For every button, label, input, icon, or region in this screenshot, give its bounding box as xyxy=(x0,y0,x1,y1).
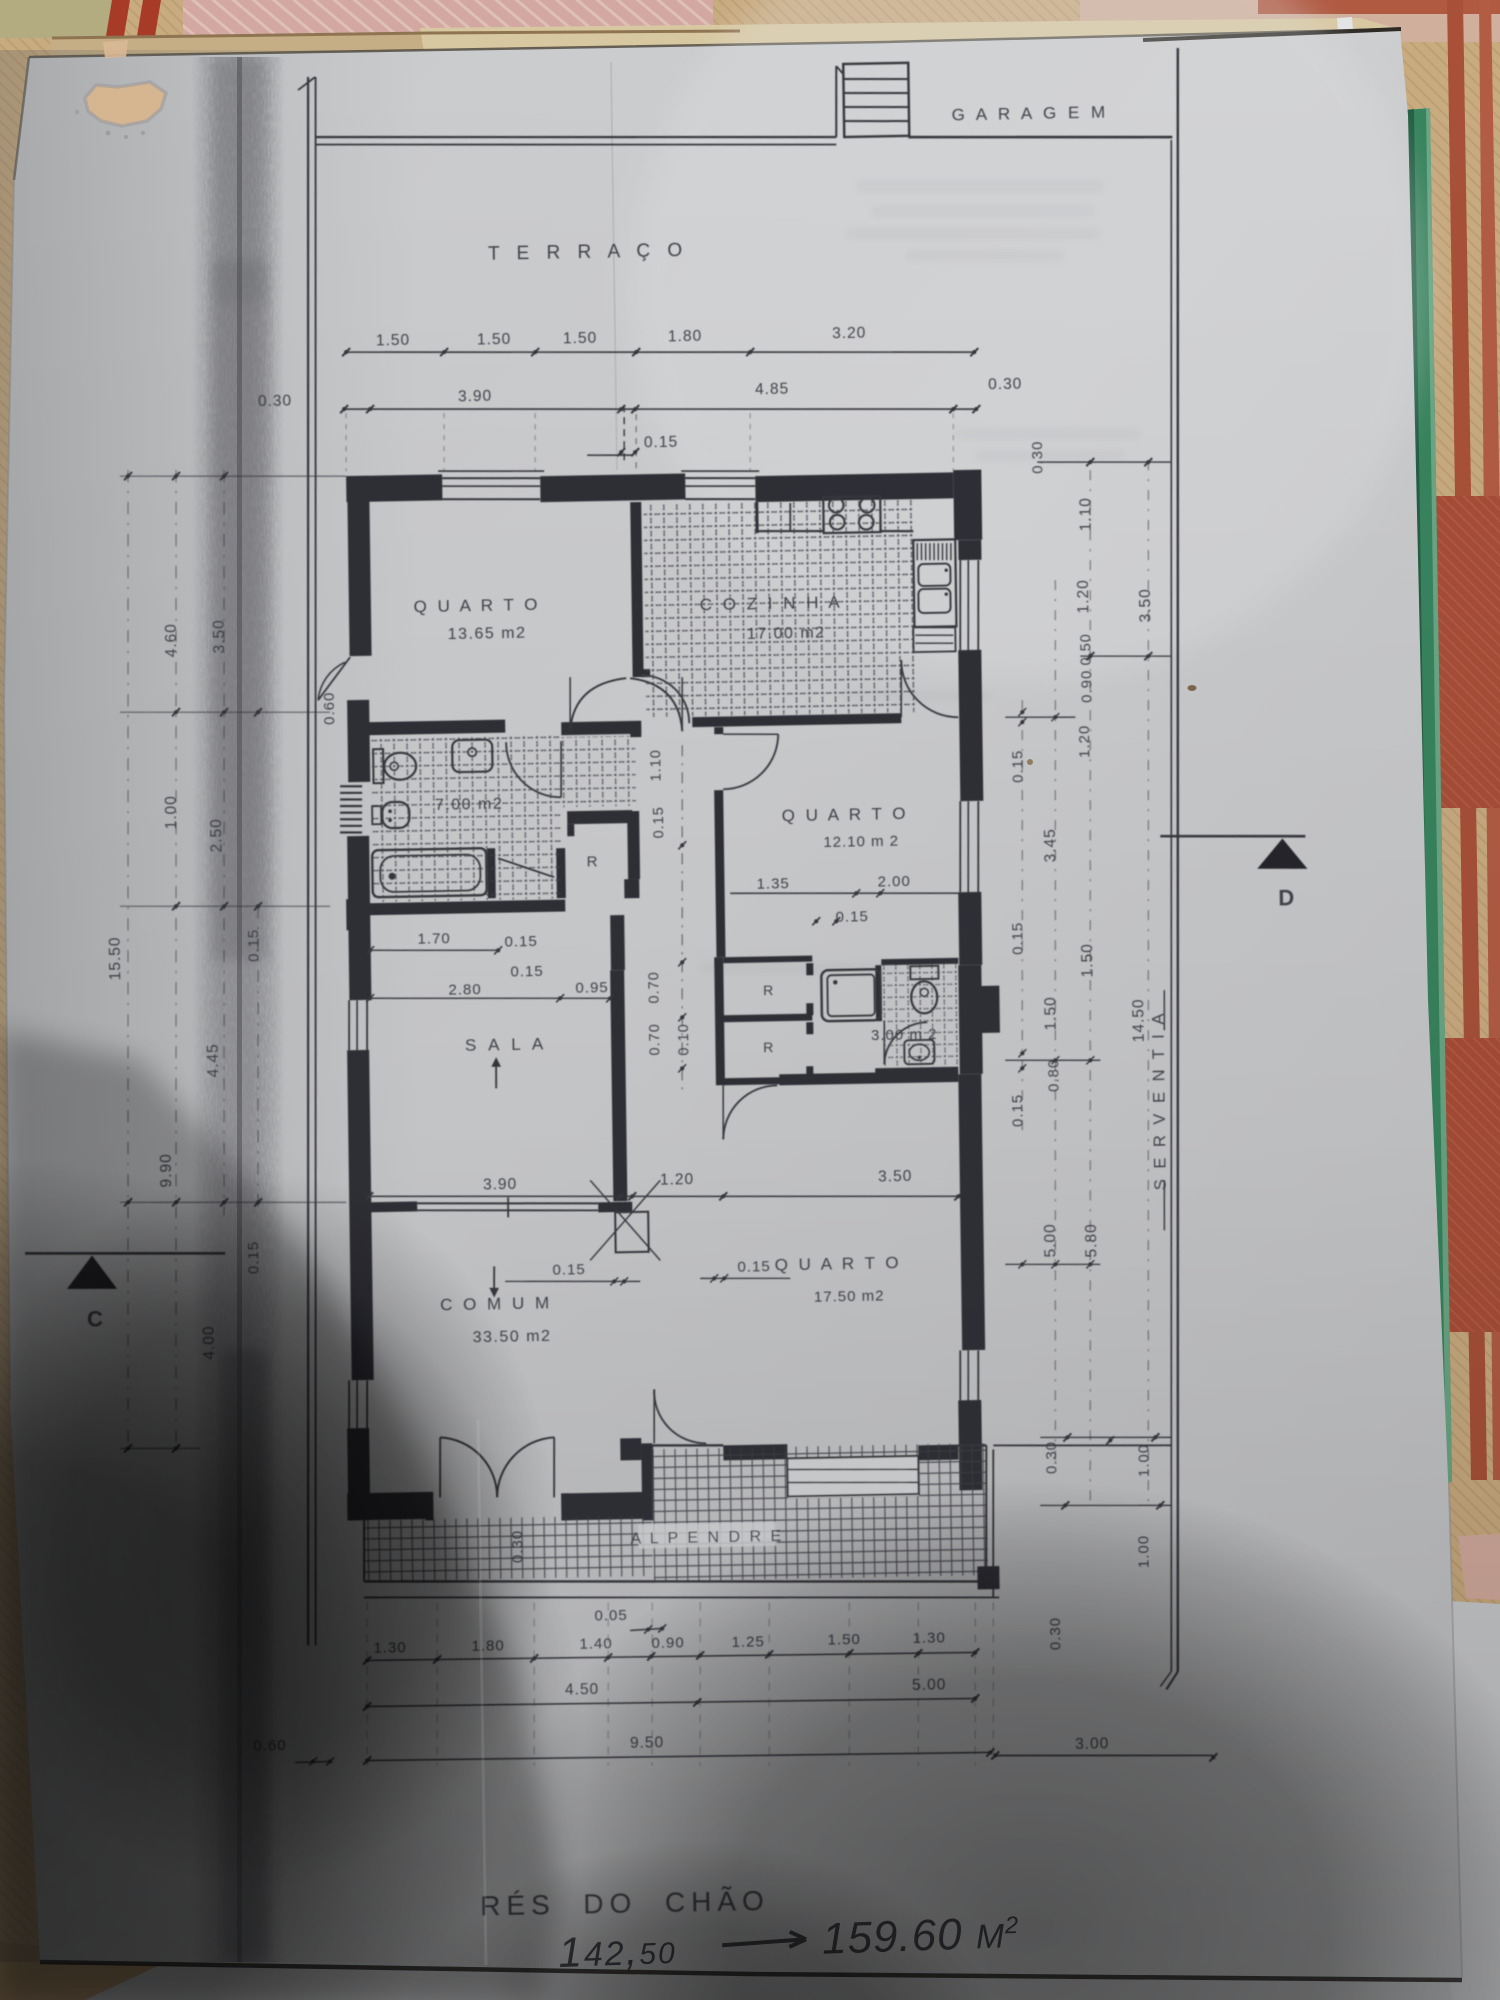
svg-text:0.95: 0.95 xyxy=(575,979,608,997)
svg-text:0.90: 0.90 xyxy=(1078,669,1095,703)
svg-text:1.50: 1.50 xyxy=(1042,996,1059,1030)
svg-text:1.80: 1.80 xyxy=(668,328,702,346)
svg-text:Q U A R T O: Q U A R T O xyxy=(413,595,540,616)
svg-text:7.00 m2: 7.00 m2 xyxy=(435,796,504,814)
svg-text:R: R xyxy=(763,982,773,998)
svg-text:4.60: 4.60 xyxy=(163,623,180,657)
svg-text:R: R xyxy=(763,1039,773,1055)
svg-text:0.15: 0.15 xyxy=(737,1258,770,1276)
svg-text:Q U A R T O: Q U A R T O xyxy=(782,804,909,825)
svg-text:G A R A G E M: G A R A G E M xyxy=(952,103,1109,125)
svg-text:3.50: 3.50 xyxy=(211,619,228,653)
svg-text:0.15: 0.15 xyxy=(1009,1094,1026,1128)
svg-text:1.35: 1.35 xyxy=(756,875,789,893)
svg-text:0.15: 0.15 xyxy=(245,929,262,963)
svg-text:14.50: 14.50 xyxy=(1130,998,1148,1042)
svg-text:0.10: 0.10 xyxy=(676,1023,692,1056)
svg-text:1.50: 1.50 xyxy=(477,331,511,349)
svg-text:0.70: 0.70 xyxy=(646,971,662,1004)
svg-text:0.15: 0.15 xyxy=(1009,922,1026,956)
svg-text:0.15: 0.15 xyxy=(1009,750,1026,784)
svg-text:1.00: 1.00 xyxy=(163,795,180,829)
svg-text:1.50: 1.50 xyxy=(1079,943,1096,977)
svg-text:0.70: 0.70 xyxy=(647,1023,663,1056)
svg-text:0.15: 0.15 xyxy=(552,1261,585,1279)
svg-text:1.70: 1.70 xyxy=(417,930,450,948)
svg-text:T E R R A Ç O: T E R R A Ç O xyxy=(488,240,688,265)
svg-text:3.20: 3.20 xyxy=(832,325,866,343)
svg-text:S E R V E N T I A: S E R V E N T I A xyxy=(1149,1010,1170,1190)
svg-text:0.30: 0.30 xyxy=(988,376,1022,394)
svg-text:0.15: 0.15 xyxy=(835,908,868,926)
svg-text:1.00: 1.00 xyxy=(1135,1444,1152,1478)
svg-text:0.30: 0.30 xyxy=(258,393,292,411)
svg-text:1.20: 1.20 xyxy=(1075,579,1092,613)
svg-text:3.90: 3.90 xyxy=(483,1176,517,1194)
svg-text:5.00: 5.00 xyxy=(1042,1223,1059,1257)
svg-text:1.10: 1.10 xyxy=(1077,497,1094,531)
svg-text:1.10: 1.10 xyxy=(648,749,664,782)
svg-text:12.10 m 2: 12.10 m 2 xyxy=(823,833,899,851)
svg-text:2.80: 2.80 xyxy=(448,981,481,999)
svg-text:1.50: 1.50 xyxy=(563,330,597,348)
svg-text:3.45: 3.45 xyxy=(1042,828,1059,862)
svg-text:3.50: 3.50 xyxy=(878,1168,912,1186)
svg-text:0.15: 0.15 xyxy=(644,434,678,452)
svg-text:S A L A: S A L A xyxy=(465,1034,547,1055)
svg-text:2.00: 2.00 xyxy=(877,873,910,891)
svg-text:17.00 m2: 17.00 m2 xyxy=(747,624,826,642)
svg-text:0.30: 0.30 xyxy=(1043,1441,1060,1475)
svg-text:R: R xyxy=(587,853,598,870)
svg-text:C O Z I N H A: C O Z I N H A xyxy=(700,593,843,615)
svg-text:D: D xyxy=(1278,885,1294,910)
svg-text:5.80: 5.80 xyxy=(1083,1223,1100,1257)
svg-text:3.90: 3.90 xyxy=(458,388,492,406)
svg-text:0.50: 0.50 xyxy=(1078,633,1094,666)
svg-text:0.80: 0.80 xyxy=(1045,1059,1062,1093)
svg-text:1.20: 1.20 xyxy=(660,1171,694,1189)
svg-text:2.50: 2.50 xyxy=(208,818,225,852)
svg-text:4.85: 4.85 xyxy=(755,381,789,399)
svg-text:3.00 m 2: 3.00 m 2 xyxy=(871,1026,938,1044)
svg-text:0.05: 0.05 xyxy=(594,1607,627,1625)
svg-text:0.15: 0.15 xyxy=(510,963,543,981)
svg-text:15.50: 15.50 xyxy=(107,936,125,980)
svg-text:0.60: 0.60 xyxy=(321,691,338,725)
svg-text:1.20: 1.20 xyxy=(1076,725,1093,759)
svg-text:1.50: 1.50 xyxy=(376,332,410,350)
svg-text:3.50: 3.50 xyxy=(1137,588,1154,622)
svg-text:17.50 m2: 17.50 m2 xyxy=(814,1288,885,1306)
svg-text:4.45: 4.45 xyxy=(205,1043,222,1077)
svg-text:13.65 m2: 13.65 m2 xyxy=(448,624,527,642)
svg-text:0.15: 0.15 xyxy=(504,933,537,951)
svg-text:Q U A R T O: Q U A R T O xyxy=(775,1253,902,1274)
svg-text:0.15: 0.15 xyxy=(651,806,667,839)
svg-text:0.30: 0.30 xyxy=(1029,440,1046,474)
